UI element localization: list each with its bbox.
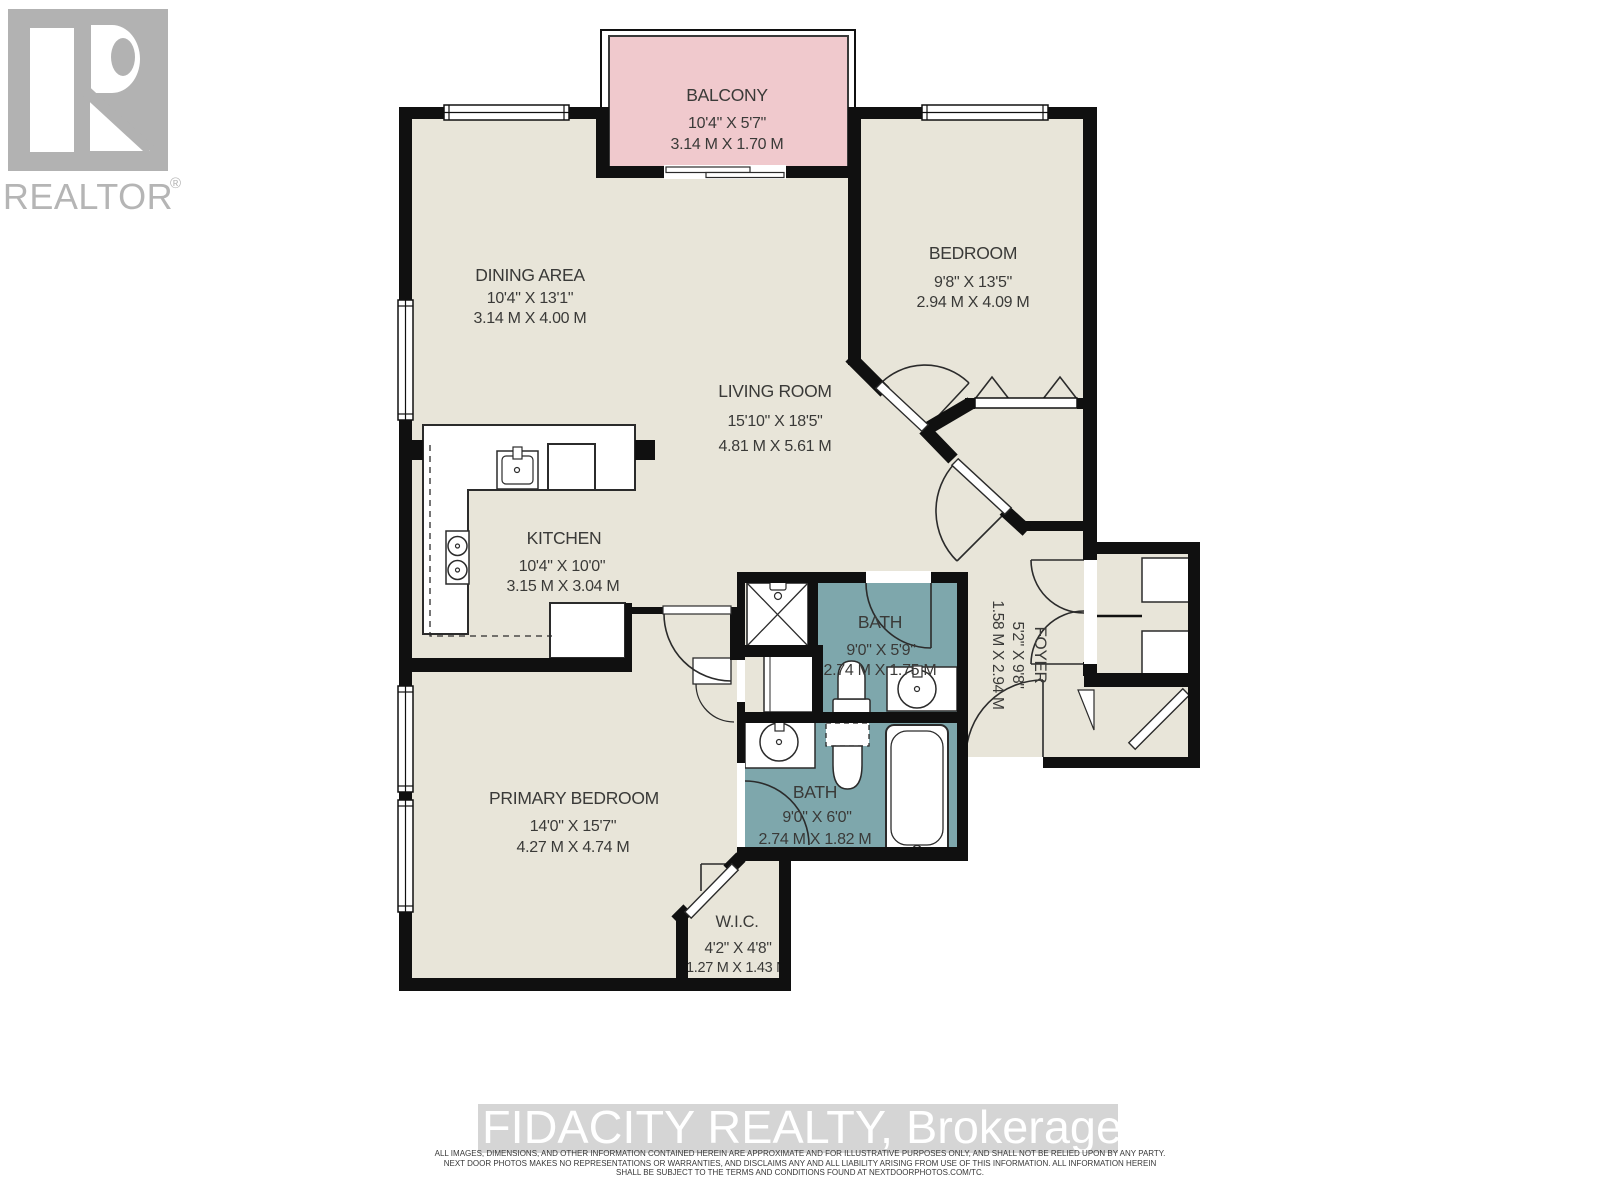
svg-text:W.I.C.: W.I.C. (715, 913, 758, 931)
svg-text:ALL IMAGES, DIMENSIONS, AND OT: ALL IMAGES, DIMENSIONS, AND OTHER INFORM… (435, 1149, 1166, 1158)
svg-text:BEDROOM: BEDROOM (929, 243, 1017, 263)
svg-text:4.27 M X 4.74 M: 4.27 M X 4.74 M (517, 839, 630, 856)
svg-text:3.14 M X 1.70 M: 3.14 M X 1.70 M (671, 136, 784, 153)
svg-text:3.15 M X 3.04 M: 3.15 M X 3.04 M (507, 578, 620, 595)
svg-text:14'0" X 15'7": 14'0" X 15'7" (530, 818, 617, 835)
svg-text:NEXT DOOR PHOTOS MAKES NO REPR: NEXT DOOR PHOTOS MAKES NO REPRESENTATION… (444, 1159, 1157, 1168)
svg-text:15'10" X 18'5": 15'10" X 18'5" (727, 413, 822, 430)
svg-text:BATH: BATH (858, 612, 902, 632)
svg-text:2.94 M X 4.09 M: 2.94 M X 4.09 M (917, 294, 1030, 311)
svg-text:3.14 M X 4.00 M: 3.14 M X 4.00 M (474, 310, 587, 327)
svg-text:BALCONY: BALCONY (686, 85, 768, 105)
svg-text:LIVING ROOM: LIVING ROOM (718, 381, 831, 401)
svg-text:FOYER: FOYER (1031, 626, 1050, 683)
svg-text:9'0" X 5'9": 9'0" X 5'9" (846, 642, 915, 659)
svg-text:5'2" X 9'8": 5'2" X 9'8" (1009, 621, 1026, 688)
svg-text:9'8" X 13'5": 9'8" X 13'5" (934, 274, 1012, 291)
svg-text:KITCHEN: KITCHEN (527, 528, 602, 548)
svg-text:REALTOR: REALTOR (3, 176, 173, 217)
svg-text:1.58 M X 2.94 M: 1.58 M X 2.94 M (989, 600, 1006, 709)
svg-text:10'4" X 10'0": 10'4" X 10'0" (519, 558, 606, 575)
svg-text:SHALL BE SUBJECT TO THE TERMS: SHALL BE SUBJECT TO THE TERMS AND CONDIT… (616, 1168, 984, 1177)
svg-text:BATH: BATH (793, 782, 837, 802)
svg-text:2.74 M X 1.82 M: 2.74 M X 1.82 M (759, 831, 872, 848)
svg-text:10'4" X 13'1": 10'4" X 13'1" (487, 290, 574, 307)
svg-text:9'0" X 6'0": 9'0" X 6'0" (782, 809, 851, 826)
svg-text:DINING AREA: DINING AREA (475, 265, 585, 285)
svg-text:PRIMARY BEDROOM: PRIMARY BEDROOM (489, 788, 659, 808)
svg-text:2.74 M X 1.75 M: 2.74 M X 1.75 M (824, 662, 937, 679)
svg-text:1.27 M X 1.43 M: 1.27 M X 1.43 M (686, 960, 788, 976)
svg-text:4.81 M X 5.61 M: 4.81 M X 5.61 M (719, 438, 832, 455)
svg-text:4'2" X 4'8": 4'2" X 4'8" (704, 940, 771, 957)
svg-text:10'4" X 5'7": 10'4" X 5'7" (688, 115, 766, 132)
svg-text:®: ® (170, 175, 181, 192)
svg-text:FIDACITY REALTY, Brokerage: FIDACITY REALTY, Brokerage (482, 1101, 1122, 1153)
